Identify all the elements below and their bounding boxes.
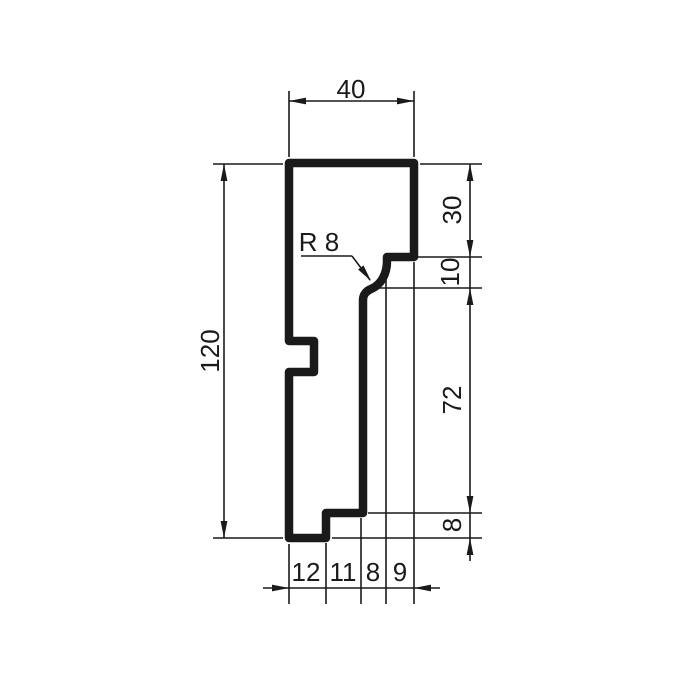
arrowhead-arrow-right-288-up xyxy=(467,288,474,305)
dimension-label-bottom-12: 12 xyxy=(292,557,321,587)
arrowhead-arrow-right-513-down xyxy=(467,496,474,513)
arrowhead-arrow-right-257-down xyxy=(467,240,474,257)
profile-outline xyxy=(289,163,414,538)
arrowhead-arrow-left-down xyxy=(221,521,228,538)
dimension-label-right-8: 8 xyxy=(437,518,467,532)
arrowhead-arrow-top-left xyxy=(289,98,306,105)
arrowhead-arrow-right-164-up xyxy=(467,164,474,181)
arrowhead-arrow-right-538-up xyxy=(467,538,474,555)
arrowhead-arrow-bottom-left xyxy=(272,585,289,592)
technical-drawing: 401203010728121189R 8 xyxy=(0,0,686,686)
drawing-canvas: 401203010728121189R 8 xyxy=(0,0,686,686)
dimension-label-bottom-8: 8 xyxy=(366,557,380,587)
arrowhead-arrow-top-right xyxy=(397,98,414,105)
dimension-label-left-height: 120 xyxy=(195,329,225,372)
radius-label: R 8 xyxy=(299,227,339,257)
dimension-label-top-width: 40 xyxy=(337,74,366,104)
dimension-label-right-10: 10 xyxy=(435,258,465,287)
dimension-label-bottom-11: 11 xyxy=(330,557,357,587)
arrowhead-arrow-left-up xyxy=(221,164,228,181)
arrowhead-arrow-bottom-right xyxy=(414,585,431,592)
dimension-label-bottom-9: 9 xyxy=(393,557,407,587)
dimension-label-right-30: 30 xyxy=(437,196,467,225)
dimension-label-right-72: 72 xyxy=(437,386,467,415)
